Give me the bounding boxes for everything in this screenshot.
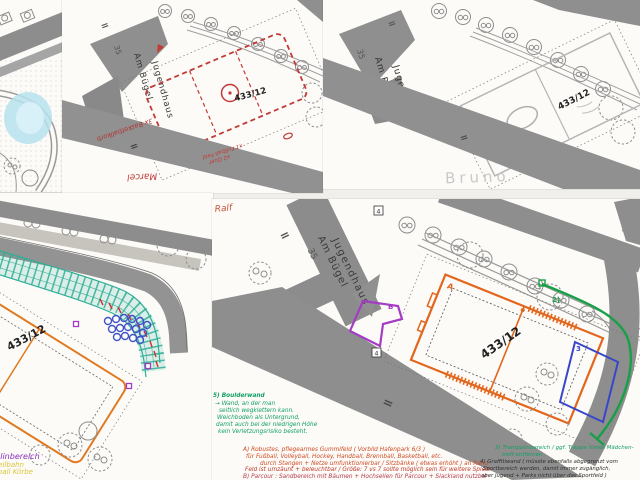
scan-collage: = Jugendhaus Am Bügel 35	[0, 0, 640, 480]
street-corner	[533, 0, 640, 26]
right-street	[582, 249, 625, 459]
plan-scan-teal-grid: 433/12 Trampolinbereich mit Seilbahn Bas…	[0, 193, 213, 480]
notes-trampolin: 3) Trampolinbereich / ggf. Treppe hinter…	[495, 445, 634, 458]
label-parcour-b: B	[388, 303, 393, 311]
note-line: A) Robustes, pflegearmes Gummifeld ( Vor…	[242, 447, 425, 453]
note-line: für Fußball, Volleyball, Hockey, Handbal…	[246, 454, 442, 460]
plan-scan-marcel: = Jugendhaus Am Bügel 35	[62, 0, 323, 193]
center-dot	[228, 91, 231, 94]
building-name-1: Jugendhaus	[149, 59, 175, 120]
note-line: Sportbereich werden, damit immer zugängl…	[483, 466, 611, 472]
label-blue-3: 3	[576, 345, 581, 353]
note-line: 4) Graffitiwand ( müsste ebenfalls abgeg…	[480, 459, 618, 465]
red-scribble	[283, 132, 293, 140]
box-4-bottom-label: 4	[374, 350, 378, 358]
note-line: → Wand, an der man	[215, 401, 275, 407]
equals-mark: =	[277, 227, 292, 244]
plan-scan-bruno: = Jugendhaus Am Bügel 35 433	[323, 0, 640, 189]
plan-scan-ralf: Ralf = Jugendhaus Am Bügel 35	[212, 199, 640, 480]
notes-boulderwand: 5) Boulderwand → Wand, an der man seitli…	[213, 393, 318, 435]
street-corner	[614, 199, 640, 245]
parcel-number: 433/12	[233, 86, 267, 104]
note-line: Feld ist umzäunt + beleuchtbar / Größe: …	[245, 467, 491, 473]
tree	[253, 268, 259, 274]
label-field-a: A	[446, 281, 456, 292]
box-4-bottom: 4	[372, 348, 381, 358]
street-band	[62, 100, 323, 193]
street-corner	[297, 0, 323, 22]
legend-purple: Trampolinbereich	[0, 452, 40, 461]
author-marcel: Marcel	[126, 170, 157, 182]
box-4-top: 4	[374, 206, 383, 216]
note-line: seitlich wegklettern kann.	[219, 408, 294, 414]
author-ralf: Ralf	[214, 203, 234, 215]
note-line: aber Jugend + Parks nicht über das Sport…	[481, 473, 607, 479]
legend-yellow-2: Basketball Körbe	[0, 468, 33, 476]
note-line: 3) Trampolinbereich / ggf. Treppe hinter…	[495, 445, 634, 451]
note-line: damit auch bei der niedrigen Höhe	[216, 422, 318, 428]
cyan-highlight-blob	[4, 92, 52, 144]
note-line: treff entfernen	[502, 452, 543, 458]
parcel-number: 433/12	[478, 324, 524, 362]
plan-fragment-top-left	[0, 0, 64, 192]
author-bruno: Bruno	[445, 167, 510, 187]
equals-mark: =	[99, 20, 111, 33]
footpath-bundle	[470, 28, 640, 110]
parcel-number: 433/12	[556, 88, 591, 113]
note-parcour: B) Parcour : Sandbereich mit Bäumen + Ho…	[243, 474, 488, 480]
note-line: kein Verletzungsrisiko besteht.	[218, 429, 308, 435]
note-line: 5) Boulderwand	[213, 393, 266, 399]
note-line: Weichboden als Untergrund,	[217, 415, 300, 421]
blue-scribble-cluster	[105, 315, 151, 344]
notes-graffitiwand: 4) Graffitiwand ( müsste ebenfalls abgeg…	[480, 459, 618, 479]
tree	[261, 271, 267, 277]
tree	[249, 262, 271, 284]
label-green-2: 2)	[552, 296, 560, 304]
box-4-top-label: 4	[376, 208, 380, 216]
